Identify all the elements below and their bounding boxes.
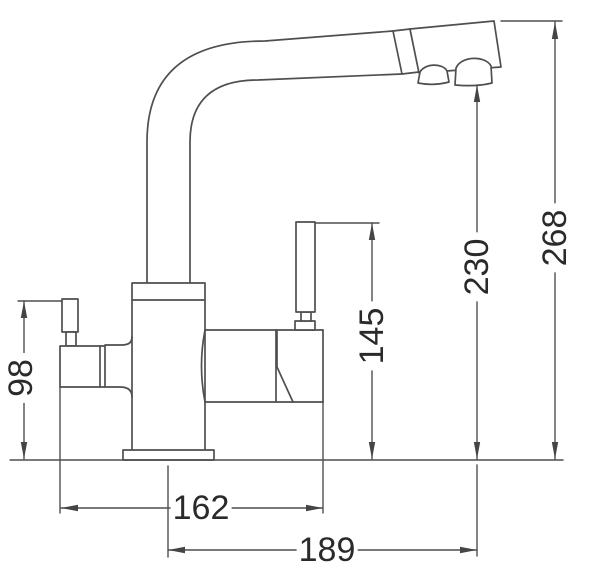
nozzle-large <box>455 58 492 85</box>
body-column <box>132 283 205 450</box>
drawing-sheet: 98 145 230 268 162 189 <box>0 0 608 566</box>
dimension-label-overall-height: 268 <box>536 204 574 273</box>
spray-head <box>393 21 501 86</box>
right-handle-lever <box>295 222 315 330</box>
dimension-label-body-span-width: 162 <box>171 489 232 527</box>
left-valve <box>60 299 132 397</box>
faucet-technical-drawing <box>0 0 608 566</box>
dimension-label-spout-outlet-height: 230 <box>458 233 496 302</box>
dimension-label-handle-height: 145 <box>353 302 391 371</box>
dimension-label-spout-reach: 189 <box>297 531 358 566</box>
base-flange <box>123 450 214 460</box>
spout-pipe <box>147 31 402 284</box>
right-valve-body <box>202 330 324 402</box>
dimension-label-side-knob-height: 98 <box>2 353 40 403</box>
nozzle-small <box>418 65 449 84</box>
left-valve-knob <box>62 299 78 332</box>
